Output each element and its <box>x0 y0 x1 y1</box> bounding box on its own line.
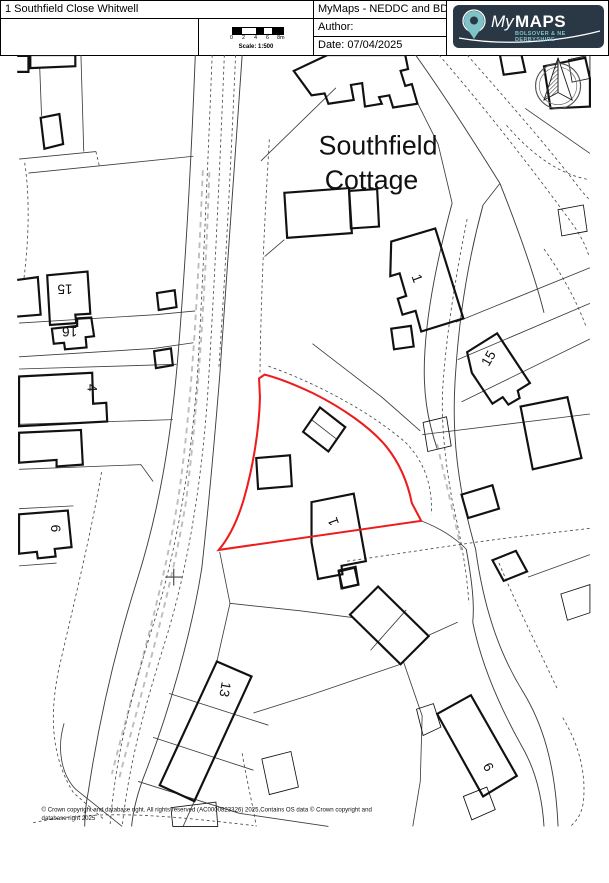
outbuilding-outline <box>262 751 299 794</box>
copyright-line2: database right 2025 <box>42 815 96 822</box>
scale-tick-6: 6 <box>266 35 269 41</box>
logo-brand-my: My <box>491 12 514 32</box>
building-outline <box>17 56 28 72</box>
author-cell: Author: <box>313 18 447 37</box>
label-15-west: 15 <box>57 282 72 297</box>
scale-bar <box>232 27 284 35</box>
label-house-1: 1 <box>409 272 427 285</box>
logo-brand-maps: MAPS <box>515 12 566 32</box>
label-9: 9 <box>480 760 497 774</box>
logo-tagline: BOLSOVER & NE DERBYSHIRE <box>515 31 604 43</box>
building-15-east-outline <box>467 333 530 404</box>
dashed-boundaries <box>24 55 590 826</box>
empty-header-cell <box>0 18 199 56</box>
building-outline <box>30 55 75 68</box>
scale-tick-8m: 8m <box>277 35 285 41</box>
parcel-boundaries <box>19 55 590 826</box>
mymaps-logo: My MAPS BOLSOVER & NE DERBYSHIRE <box>453 5 604 48</box>
building-outline <box>284 188 351 238</box>
scale-tick-4: 4 <box>254 35 257 41</box>
site-boundary <box>219 375 421 550</box>
map-area: Southfield Cottage 1 1 15 16 4 6 13 15 9… <box>0 55 609 878</box>
product-name: MyMaps - NEDDC and BDC <box>318 3 456 15</box>
outbuilding-outline <box>561 585 590 621</box>
scale-cell: 0 2 4 6 8m Scale: 1:500 <box>198 18 314 56</box>
building-outline <box>500 55 525 75</box>
scale-tick-2: 2 <box>242 35 245 41</box>
logo-cell: My MAPS BOLSOVER & NE DERBYSHIRE <box>446 0 609 56</box>
label-6: 6 <box>48 525 63 533</box>
building-outline <box>256 455 292 489</box>
building-outline <box>492 551 527 581</box>
track-dashed-lines <box>112 170 462 781</box>
label-4: 4 <box>85 384 100 392</box>
building-outline <box>462 485 499 518</box>
label-16: 16 <box>62 324 77 339</box>
building-13-outline <box>160 661 252 801</box>
label-13: 13 <box>216 681 233 698</box>
copyright-notice: © Crown copyright and database right. Al… <box>42 806 372 821</box>
map-labels: Southfield Cottage 1 1 15 16 4 6 13 15 9 <box>48 130 499 773</box>
building-outline <box>391 326 413 349</box>
map-title: 1 Southfield Close Whitwell <box>5 3 138 15</box>
building-outline <box>19 430 83 467</box>
north-arrow-icon <box>536 58 581 109</box>
building-outline <box>17 277 40 316</box>
house-1-outline <box>390 228 463 331</box>
scale-ratio-label: Scale: 1:500 <box>199 44 313 50</box>
label-southfield: Southfield <box>319 130 438 160</box>
building-outline <box>521 397 582 469</box>
building-outline <box>350 586 429 664</box>
author-label: Author: <box>318 21 353 33</box>
copyright-line1: © Crown copyright and database right. Al… <box>42 806 372 813</box>
product-cell: MyMaps - NEDDC and BDC <box>313 0 447 19</box>
scale-tick-0: 0 <box>230 35 233 41</box>
building-outline <box>157 290 177 310</box>
building-6-outline <box>19 511 71 559</box>
label-15-east: 15 <box>478 348 499 369</box>
map-title-cell: 1 Southfield Close Whitwell <box>0 0 314 19</box>
building-outline <box>41 114 63 149</box>
label-site-house-1: 1 <box>324 515 342 528</box>
location-pin-icon <box>463 10 485 39</box>
southfield-cottage-outline <box>294 55 418 107</box>
mymaps-print-page: { "header": { "title": "1 Southfield Clo… <box>0 0 609 878</box>
outbuilding-outline <box>417 704 441 736</box>
building-outline <box>339 568 359 589</box>
map-canvas[interactable]: Southfield Cottage 1 1 15 16 4 6 13 15 9… <box>0 55 609 878</box>
date-cell: Date: 07/04/2025 <box>313 36 447 56</box>
date-label: Date: 07/04/2025 <box>318 39 402 51</box>
building-4-outline <box>19 373 107 426</box>
building-9-outline <box>437 695 517 796</box>
road-edges <box>85 55 558 826</box>
label-cottage: Cottage <box>325 165 419 195</box>
